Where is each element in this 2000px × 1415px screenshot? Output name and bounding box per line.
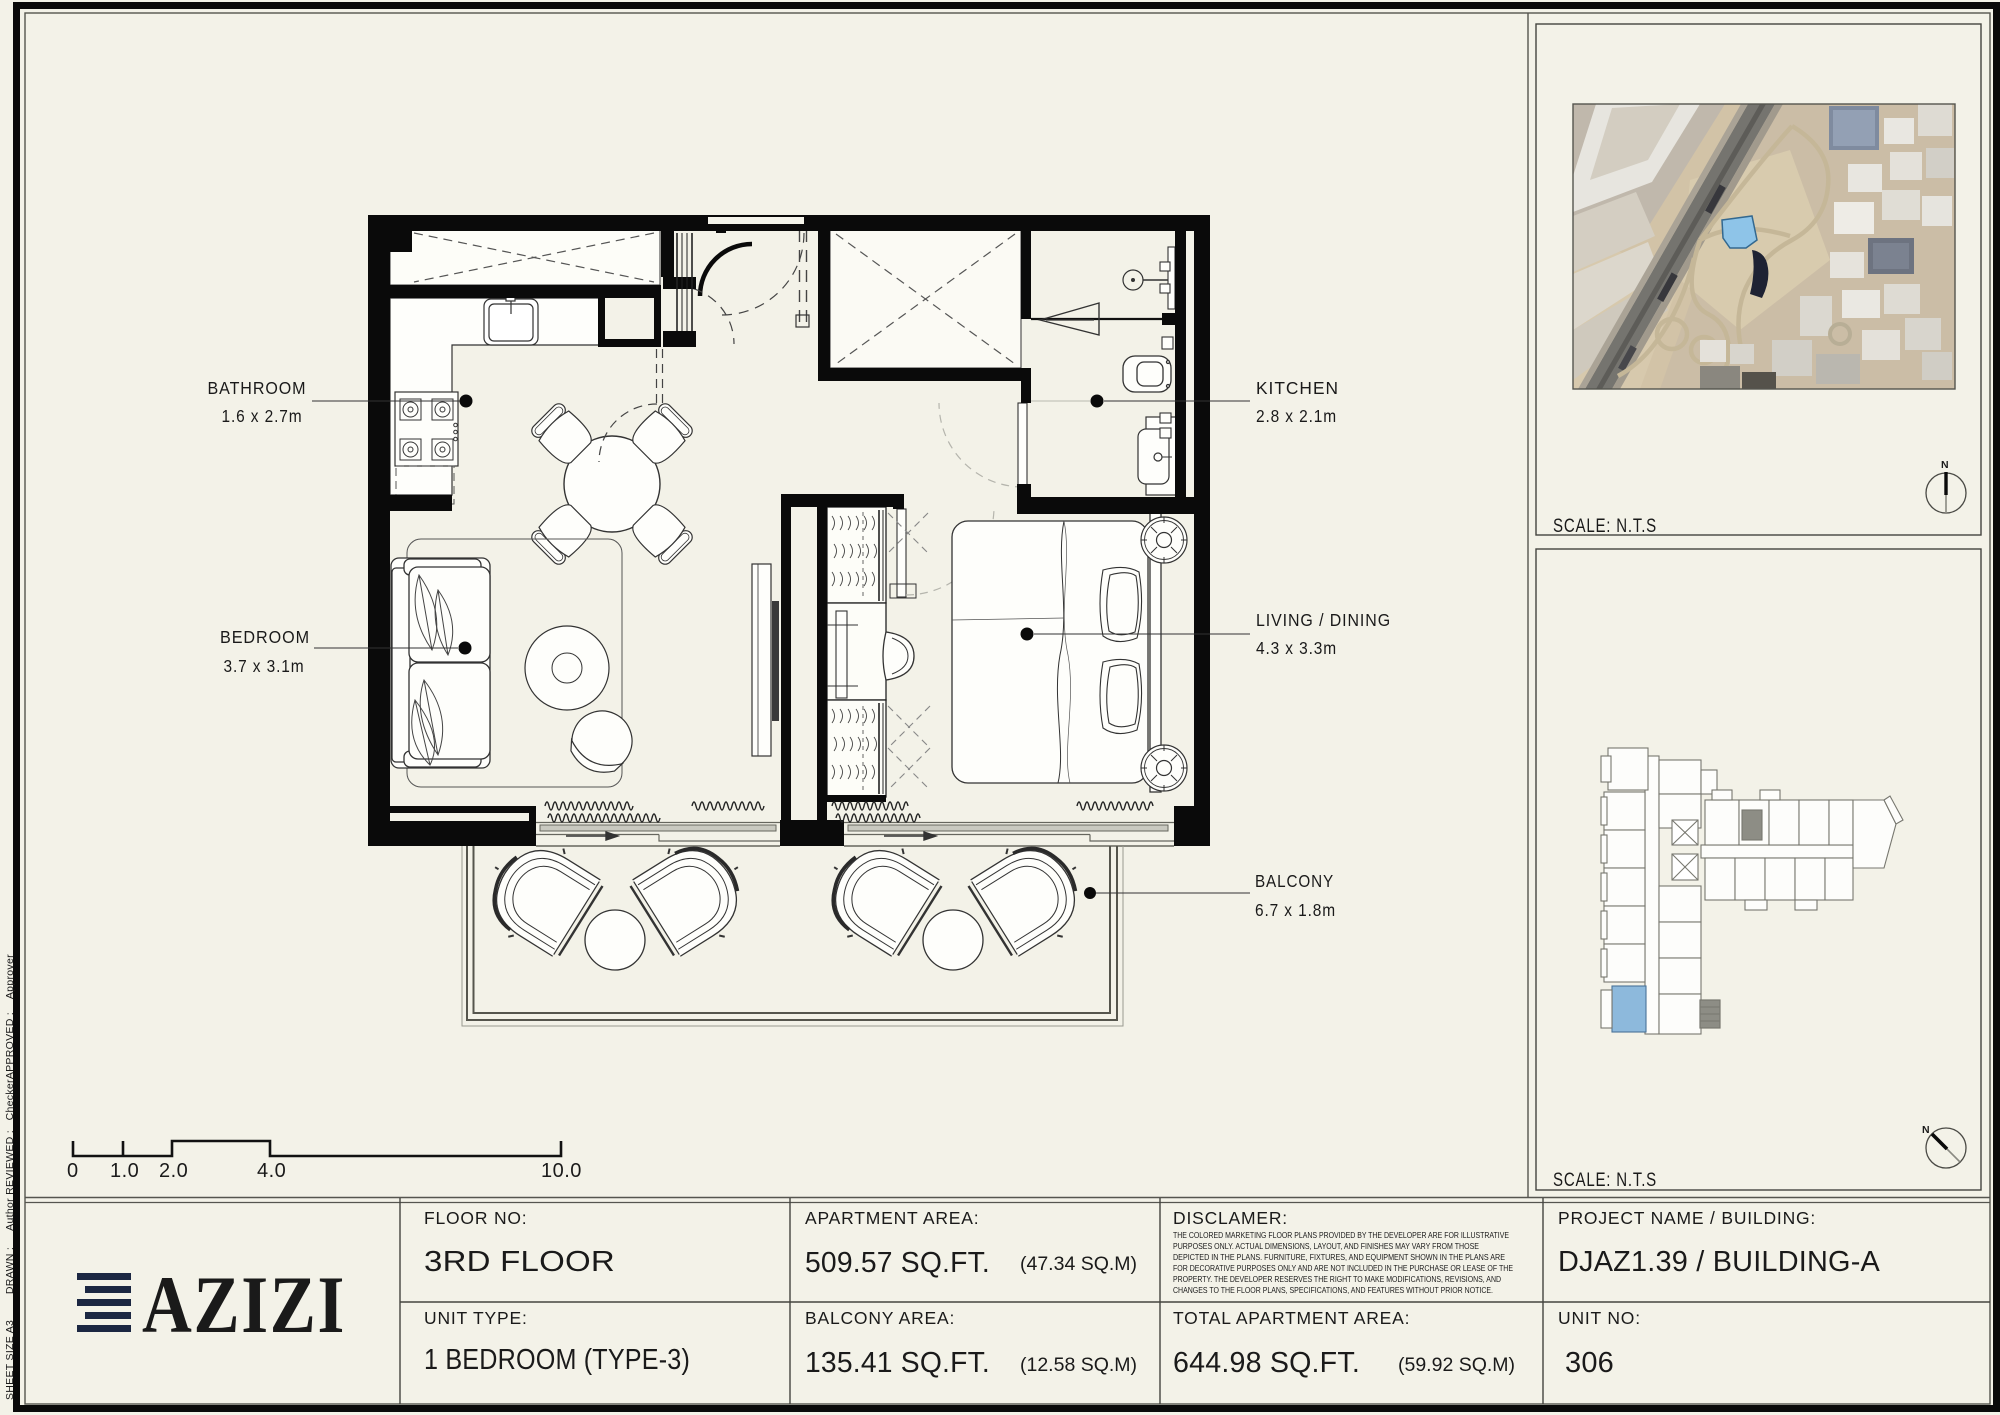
svg-text:CHANGES TO THE FLOOR PLANS, SP: CHANGES TO THE FLOOR PLANS, SPECIFICATIO… <box>1173 1285 1493 1295</box>
svg-text:2.0: 2.0 <box>159 1160 188 1182</box>
svg-text:UNIT NO:: UNIT NO: <box>1558 1308 1641 1328</box>
svg-text:SCALE: N.T.S: SCALE: N.T.S <box>1553 1170 1657 1191</box>
svg-text:APARTMENT AREA:: APARTMENT AREA: <box>805 1208 979 1228</box>
svg-text:1 BEDROOM (TYPE-3): 1 BEDROOM (TYPE-3) <box>424 1344 690 1376</box>
svg-text:LIVING / DINING: LIVING / DINING <box>1256 610 1391 630</box>
svg-text:644.98 SQ.FT.: 644.98 SQ.FT. <box>1173 1347 1360 1379</box>
svg-text:(59.92 SQ.M): (59.92 SQ.M) <box>1398 1354 1515 1376</box>
svg-text:DISCLAMER:: DISCLAMER: <box>1173 1208 1288 1228</box>
svg-text:135.41 SQ.FT.: 135.41 SQ.FT. <box>805 1347 990 1379</box>
svg-text:0: 0 <box>67 1160 79 1182</box>
svg-text:1.6 x 2.7m: 1.6 x 2.7m <box>222 406 303 426</box>
svg-text:DEPICTED IN THE PLANS. FURNITU: DEPICTED IN THE PLANS. FURNITURE, FIXTUR… <box>1173 1252 1505 1262</box>
svg-text:N: N <box>1922 1124 1930 1136</box>
svg-text:BATHROOM: BATHROOM <box>208 378 307 398</box>
svg-text:6.7 x 1.8m: 6.7 x 1.8m <box>1255 900 1336 920</box>
svg-text:FLOOR NO:: FLOOR NO: <box>424 1208 527 1228</box>
svg-text:TOTAL APARTMENT AREA:: TOTAL APARTMENT AREA: <box>1173 1308 1410 1328</box>
svg-text:4.3 x 3.3m: 4.3 x 3.3m <box>1256 638 1337 658</box>
svg-text:BALCONY: BALCONY <box>1255 871 1334 891</box>
svg-text:BEDROOM: BEDROOM <box>220 627 310 647</box>
svg-text:(12.58 SQ.M): (12.58 SQ.M) <box>1020 1354 1137 1376</box>
svg-text:3.7 x 3.1m: 3.7 x 3.1m <box>224 656 305 676</box>
svg-text:306: 306 <box>1565 1347 1614 1379</box>
svg-text:SCALE: N.T.S: SCALE: N.T.S <box>1553 516 1657 537</box>
svg-text:AZIZI: AZIZI <box>142 1259 346 1350</box>
svg-text:SHEET SIZE A3 DRAWN :: SHEET SIZE A3 DRAWN : Author REVIEWED : … <box>4 954 16 1400</box>
svg-text:3RD FLOOR: 3RD FLOOR <box>424 1246 615 1278</box>
svg-text:PROPERTY. THE DEVELOPER RESERV: PROPERTY. THE DEVELOPER RESERVES THE RIG… <box>1173 1274 1501 1284</box>
svg-text:10.0: 10.0 <box>541 1160 582 1182</box>
svg-text:509.57 SQ.FT.: 509.57 SQ.FT. <box>805 1247 990 1279</box>
svg-text:DJAZ1.39 / BUILDING-A: DJAZ1.39 / BUILDING-A <box>1558 1246 1880 1278</box>
svg-text:4.0: 4.0 <box>257 1160 286 1182</box>
svg-text:PURPOSES ONLY. ACTUAL DIMENSIO: PURPOSES ONLY. ACTUAL DIMENSIONS, LAYOUT… <box>1173 1241 1479 1251</box>
svg-text:PROJECT NAME / BUILDING:: PROJECT NAME / BUILDING: <box>1558 1208 1816 1228</box>
svg-text:KITCHEN: KITCHEN <box>1256 378 1339 398</box>
svg-text:THE COLORED MARKETING FLOOR PL: THE COLORED MARKETING FLOOR PLANS PROVID… <box>1173 1230 1509 1240</box>
svg-text:N: N <box>1941 459 1949 471</box>
svg-text:UNIT TYPE:: UNIT TYPE: <box>424 1308 528 1328</box>
svg-text:BALCONY AREA:: BALCONY AREA: <box>805 1308 955 1328</box>
svg-text:(47.34 SQ.M): (47.34 SQ.M) <box>1020 1253 1137 1275</box>
svg-text:1.0: 1.0 <box>110 1160 139 1182</box>
svg-text:2.8 x 2.1m: 2.8 x 2.1m <box>1256 406 1337 426</box>
svg-text:FOR DECORATIVE PURPOSES ONLY A: FOR DECORATIVE PURPOSES ONLY AND ARE NOT… <box>1173 1263 1513 1273</box>
